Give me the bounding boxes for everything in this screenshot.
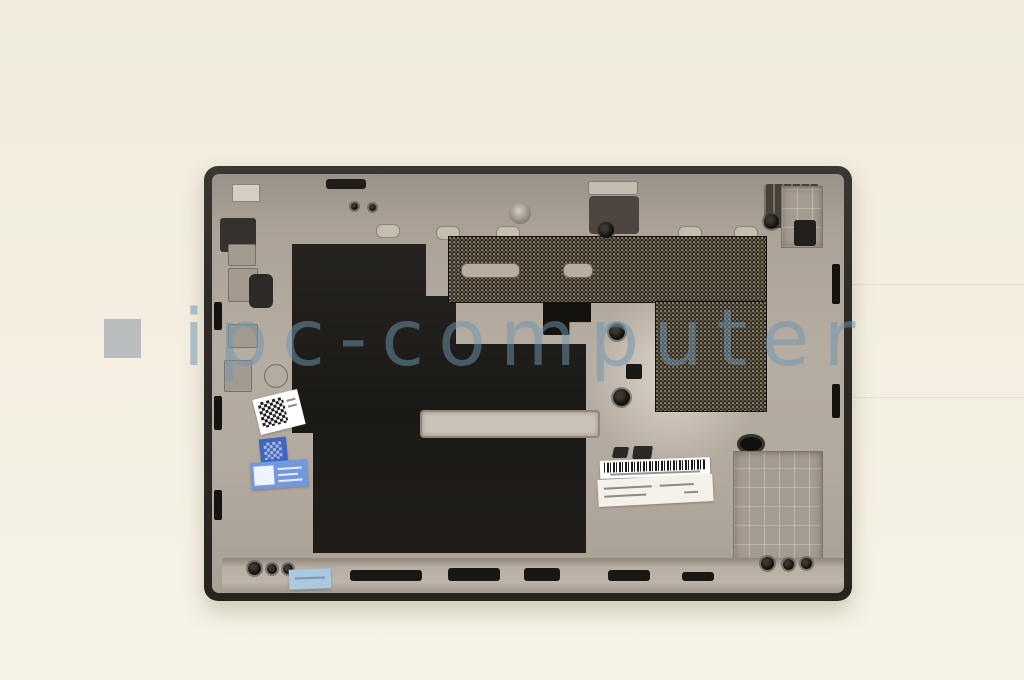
rubber-foot-slot <box>608 570 650 581</box>
label-text-row <box>288 404 297 408</box>
screw-hole <box>267 564 277 574</box>
hinge-mount-left <box>232 184 260 202</box>
label-text-row <box>278 473 298 476</box>
molded-marking <box>612 447 629 458</box>
qr-code <box>263 441 283 460</box>
screw-hole <box>598 222 614 238</box>
coax-connector <box>509 202 531 224</box>
mesh-slot <box>461 263 520 278</box>
label-text-row <box>604 485 652 490</box>
recessed-slot <box>420 410 600 438</box>
watermark-square-icon <box>104 319 141 358</box>
rubber-foot-slot <box>682 572 714 581</box>
side-port-cutout <box>214 396 222 430</box>
part-number-label <box>597 474 713 507</box>
rubber-foot-slot <box>448 568 500 581</box>
screw-hole <box>248 562 261 575</box>
qr-label-blue <box>250 459 309 490</box>
screw-hole <box>351 203 358 210</box>
backdrop-seam-line <box>852 284 1024 285</box>
qr-code <box>253 465 274 485</box>
side-port-cutout <box>214 490 222 520</box>
screw-boss <box>376 224 400 238</box>
molded-marking <box>632 446 653 459</box>
screw-hole <box>369 204 376 211</box>
port-boss <box>228 244 256 266</box>
rubber-foot-slot <box>350 570 422 581</box>
screw-hole <box>613 389 630 406</box>
label-text-row <box>295 576 325 579</box>
rubber-foot-slot <box>524 568 560 581</box>
screw-hole <box>761 557 774 570</box>
top-recess-pocket <box>589 196 639 234</box>
qr-code <box>257 397 289 429</box>
side-port-pocket <box>794 220 816 246</box>
bottom-edge-sticker <box>289 568 332 589</box>
side-port-cutout <box>832 384 840 418</box>
backdrop-seam-line <box>826 397 1024 398</box>
screw-hole <box>764 214 779 229</box>
screw-hole <box>783 559 794 570</box>
top-latch-slot <box>588 181 638 195</box>
screw-hole <box>801 558 812 569</box>
speaker-box-ribs <box>733 451 823 565</box>
top-recess-slot <box>326 179 366 189</box>
watermark-text: ipc-computer <box>183 300 869 378</box>
label-text-row <box>604 493 646 497</box>
label-text-row <box>660 483 694 487</box>
mesh-slot <box>563 263 593 278</box>
label-text-row <box>278 478 302 482</box>
label-text-row <box>286 398 295 402</box>
photo-backdrop: ipc-computer <box>0 0 1024 680</box>
label-text-row <box>684 491 698 494</box>
label-text-row <box>278 466 302 470</box>
